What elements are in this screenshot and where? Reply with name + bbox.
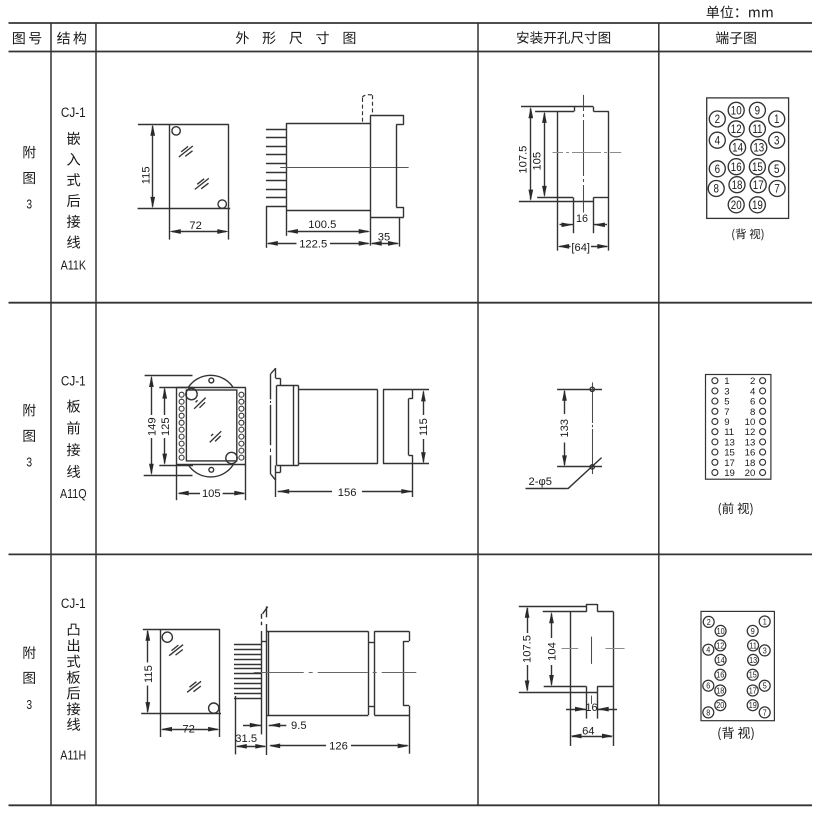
svg-text:19: 19 <box>724 468 735 479</box>
svg-text:72: 72 <box>189 220 201 232</box>
svg-text:64: 64 <box>582 726 594 738</box>
svg-text:14: 14 <box>717 655 726 664</box>
svg-text:156: 156 <box>338 487 357 499</box>
svg-text:20: 20 <box>745 468 756 479</box>
svg-text:19: 19 <box>749 701 757 710</box>
svg-text:17: 17 <box>753 179 764 192</box>
svg-text:35: 35 <box>378 231 390 243</box>
svg-text:100.5: 100.5 <box>308 219 336 231</box>
svg-text:7: 7 <box>774 183 779 196</box>
svg-text:107.5: 107.5 <box>521 635 533 663</box>
svg-text:16: 16 <box>716 670 724 679</box>
svg-text:3: 3 <box>26 454 32 470</box>
svg-text:14: 14 <box>732 142 743 155</box>
svg-text:3: 3 <box>774 135 779 148</box>
svg-text:1: 1 <box>763 617 767 626</box>
svg-text:A11K: A11K <box>61 259 87 273</box>
svg-text:CJ-1: CJ-1 <box>61 104 86 120</box>
svg-text:104: 104 <box>546 642 558 661</box>
svg-text:6: 6 <box>715 163 720 176</box>
svg-text:3: 3 <box>26 697 32 713</box>
svg-text:11: 11 <box>749 641 756 650</box>
svg-text:CJ-1: CJ-1 <box>61 595 86 611</box>
svg-text:19: 19 <box>752 199 763 212</box>
svg-text:10: 10 <box>731 105 742 118</box>
svg-text:10: 10 <box>717 626 725 635</box>
svg-text:CJ-1: CJ-1 <box>61 372 86 388</box>
svg-text:107.5: 107.5 <box>518 146 530 174</box>
svg-text:125: 125 <box>160 417 172 436</box>
svg-text:31.5: 31.5 <box>235 733 257 745</box>
svg-text:16: 16 <box>731 161 742 174</box>
svg-text:15: 15 <box>752 161 763 174</box>
svg-text:72: 72 <box>182 724 194 736</box>
svg-text:[64]: [64] <box>571 242 590 254</box>
svg-text:105: 105 <box>202 488 221 500</box>
svg-text:2-φ5: 2-φ5 <box>529 476 552 488</box>
svg-text:A11Q: A11Q <box>60 487 87 501</box>
svg-text:4: 4 <box>715 135 720 148</box>
svg-text:17: 17 <box>749 686 757 695</box>
svg-text:7: 7 <box>763 708 767 717</box>
svg-text:3: 3 <box>763 646 767 655</box>
svg-text:18: 18 <box>716 686 724 695</box>
svg-text:115: 115 <box>143 665 155 683</box>
svg-text:12: 12 <box>731 123 742 136</box>
svg-text:133: 133 <box>559 419 571 438</box>
svg-text:2: 2 <box>707 617 711 626</box>
svg-text:15: 15 <box>749 670 757 679</box>
svg-text:16: 16 <box>585 702 597 714</box>
svg-text:16: 16 <box>576 213 588 225</box>
svg-text:13: 13 <box>749 655 757 664</box>
svg-text:11: 11 <box>752 123 762 136</box>
svg-text:20: 20 <box>731 199 742 212</box>
svg-text:12: 12 <box>716 641 724 650</box>
svg-text:20: 20 <box>716 701 724 710</box>
svg-text:A11H: A11H <box>60 749 86 763</box>
svg-text:126: 126 <box>329 741 348 753</box>
svg-text:122.5: 122.5 <box>299 239 327 251</box>
svg-text:149: 149 <box>147 417 159 436</box>
svg-text:9.5: 9.5 <box>291 720 307 732</box>
svg-text:2: 2 <box>715 114 720 127</box>
svg-text:115: 115 <box>418 418 430 436</box>
svg-text:3: 3 <box>26 196 32 212</box>
svg-text:18: 18 <box>732 179 743 192</box>
svg-text:105: 105 <box>532 152 544 171</box>
svg-text:5: 5 <box>774 163 779 176</box>
svg-text:8: 8 <box>706 708 710 717</box>
svg-text:8: 8 <box>713 183 718 196</box>
svg-text:6: 6 <box>706 681 710 690</box>
svg-text:9: 9 <box>755 105 760 118</box>
svg-text:13: 13 <box>753 142 764 155</box>
svg-text:115: 115 <box>140 166 152 184</box>
svg-text:1: 1 <box>774 114 779 127</box>
svg-text:5: 5 <box>763 681 767 690</box>
svg-text:9: 9 <box>751 626 755 635</box>
